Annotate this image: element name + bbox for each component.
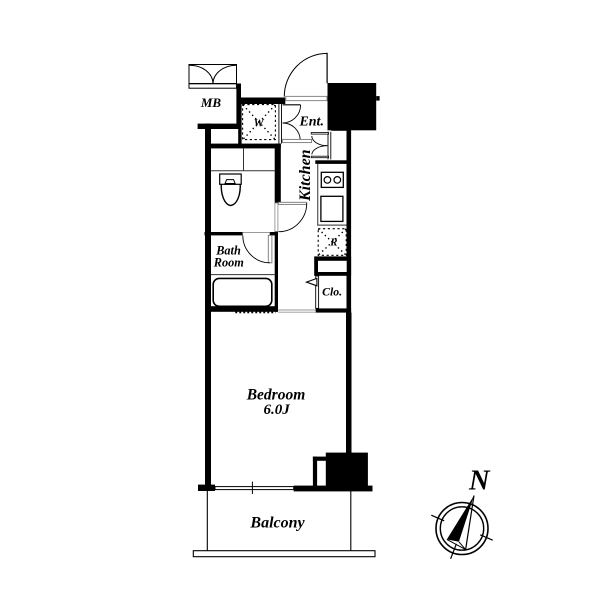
svg-text:N: N [468, 466, 491, 497]
svg-text:MB: MB [200, 95, 222, 110]
svg-text:Clo.: Clo. [322, 284, 342, 298]
svg-text:6.0J: 6.0J [263, 402, 290, 418]
svg-text:Room: Room [213, 256, 244, 270]
svg-text:Ent.: Ent. [298, 114, 324, 129]
svg-text:Balcony: Balcony [249, 515, 305, 532]
svg-text:W: W [254, 117, 265, 129]
svg-text:Kitchen: Kitchen [297, 149, 314, 202]
svg-text:R: R [329, 236, 337, 248]
